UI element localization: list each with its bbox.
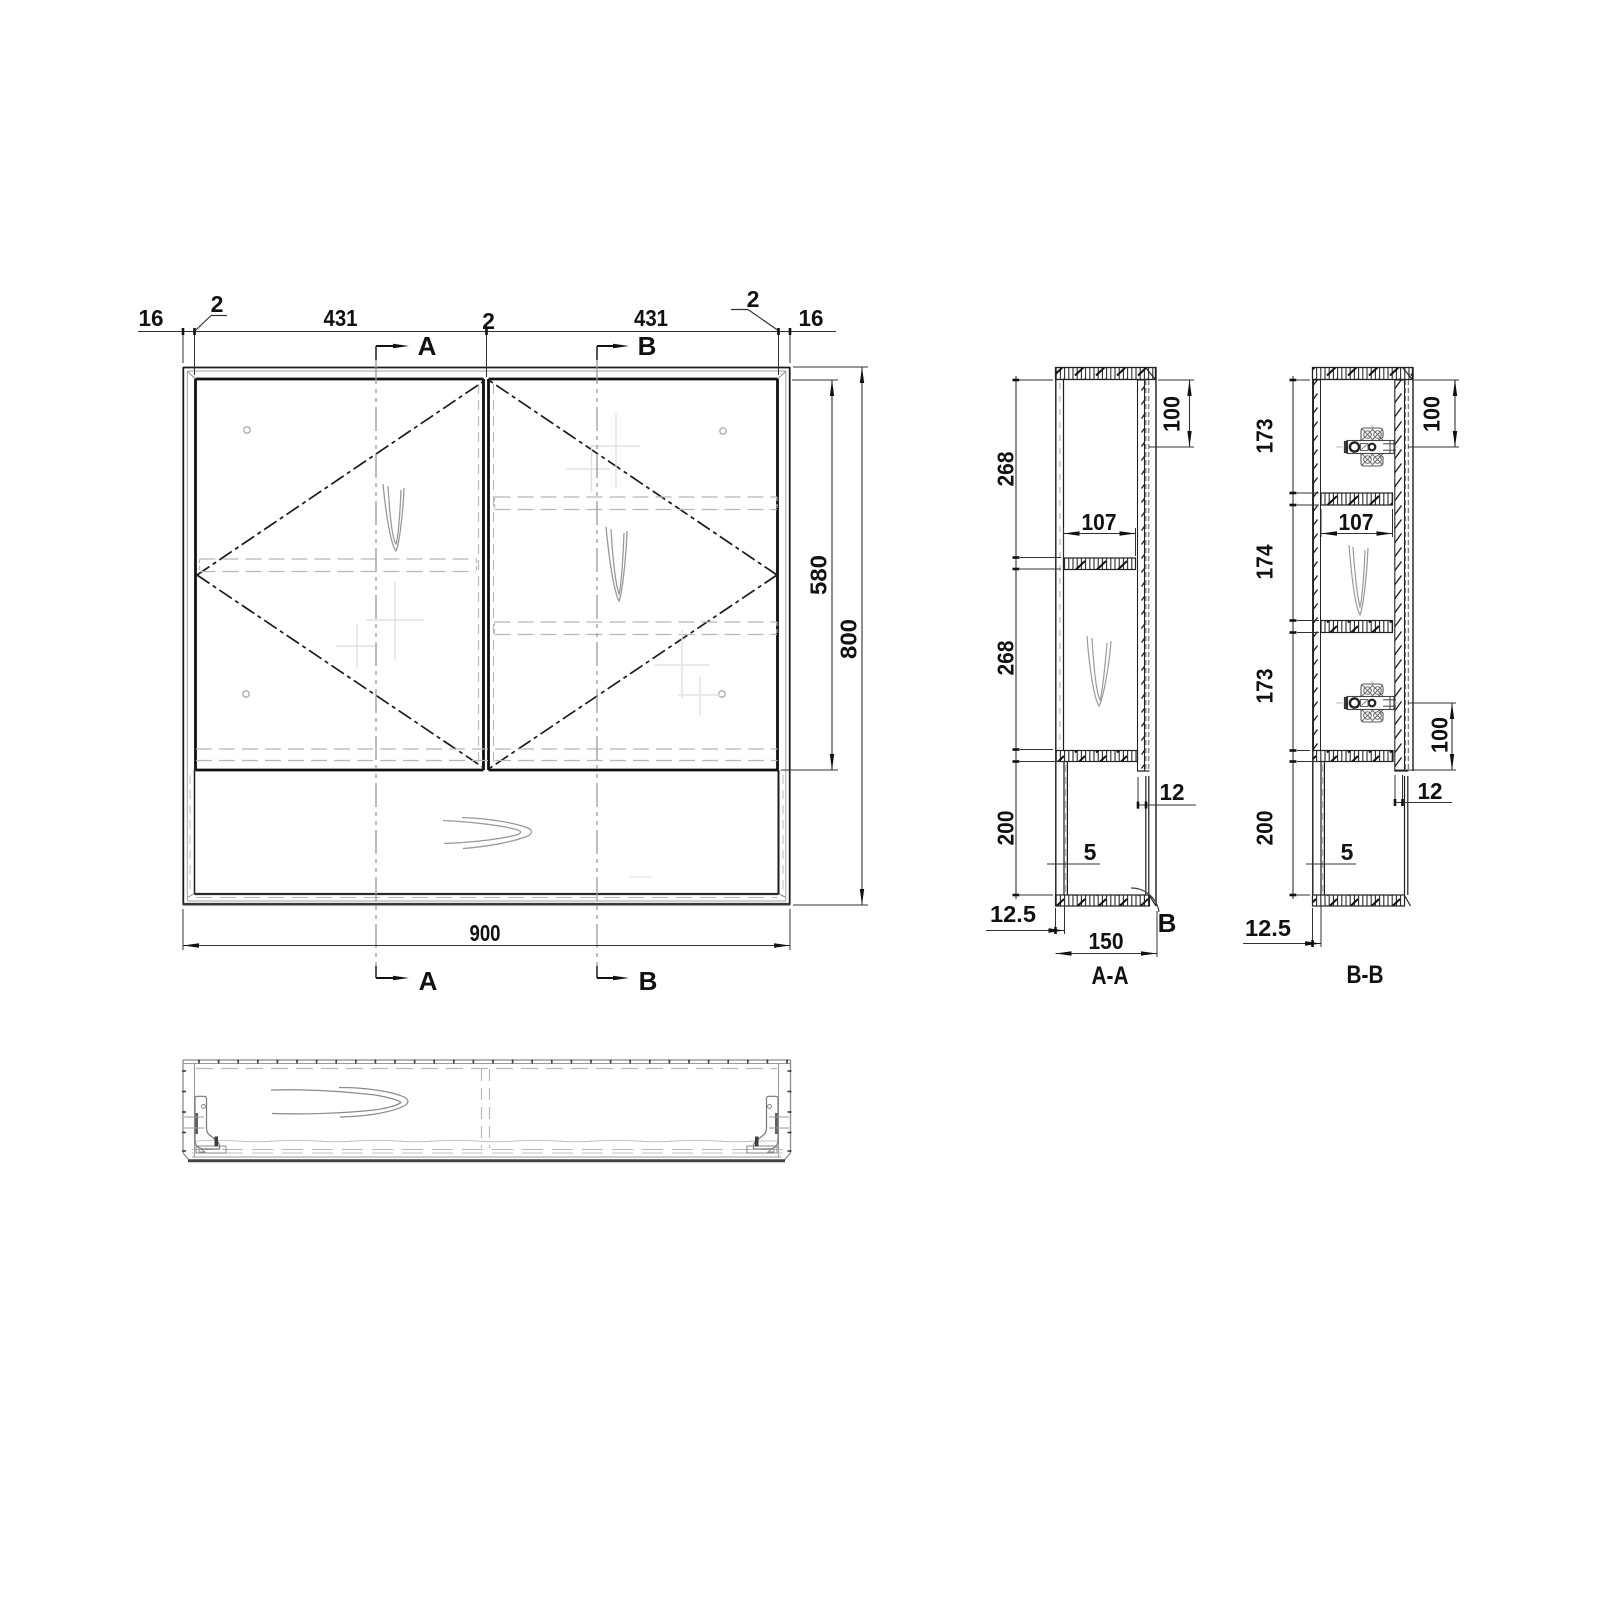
svg-text:200: 200 (993, 811, 1019, 846)
svg-text:100: 100 (1427, 717, 1453, 753)
svg-text:A-A: A-A (1092, 962, 1129, 990)
svg-text:12: 12 (1160, 779, 1185, 805)
svg-text:431: 431 (634, 305, 668, 331)
svg-text:B: B (1158, 908, 1177, 938)
svg-text:12: 12 (1418, 778, 1443, 804)
svg-text:2: 2 (747, 286, 760, 312)
svg-text:107: 107 (1082, 509, 1117, 535)
svg-text:5: 5 (1084, 839, 1097, 865)
svg-text:150: 150 (1089, 928, 1124, 954)
svg-text:431: 431 (324, 305, 358, 331)
svg-text:580: 580 (806, 555, 832, 595)
svg-text:12.5: 12.5 (1245, 915, 1291, 941)
svg-text:100: 100 (1419, 396, 1445, 432)
svg-text:B-B: B-B (1347, 961, 1384, 989)
svg-text:800: 800 (836, 619, 862, 659)
svg-text:100: 100 (1159, 396, 1185, 432)
svg-text:B: B (638, 331, 657, 361)
svg-text:A: A (418, 331, 437, 361)
svg-text:2: 2 (482, 308, 495, 334)
svg-text:16: 16 (139, 305, 164, 331)
svg-text:268: 268 (993, 640, 1019, 675)
svg-text:174: 174 (1252, 544, 1278, 579)
svg-text:5: 5 (1341, 839, 1354, 865)
svg-text:A: A (419, 966, 438, 996)
svg-text:16: 16 (799, 305, 824, 331)
svg-text:268: 268 (993, 451, 1019, 486)
svg-text:173: 173 (1252, 419, 1278, 454)
svg-text:173: 173 (1252, 669, 1278, 704)
svg-text:900: 900 (470, 920, 501, 946)
svg-text:107: 107 (1339, 509, 1374, 535)
svg-text:2: 2 (211, 291, 224, 317)
svg-text:12.5: 12.5 (990, 901, 1036, 927)
svg-text:B: B (639, 966, 658, 996)
svg-text:200: 200 (1252, 811, 1278, 846)
